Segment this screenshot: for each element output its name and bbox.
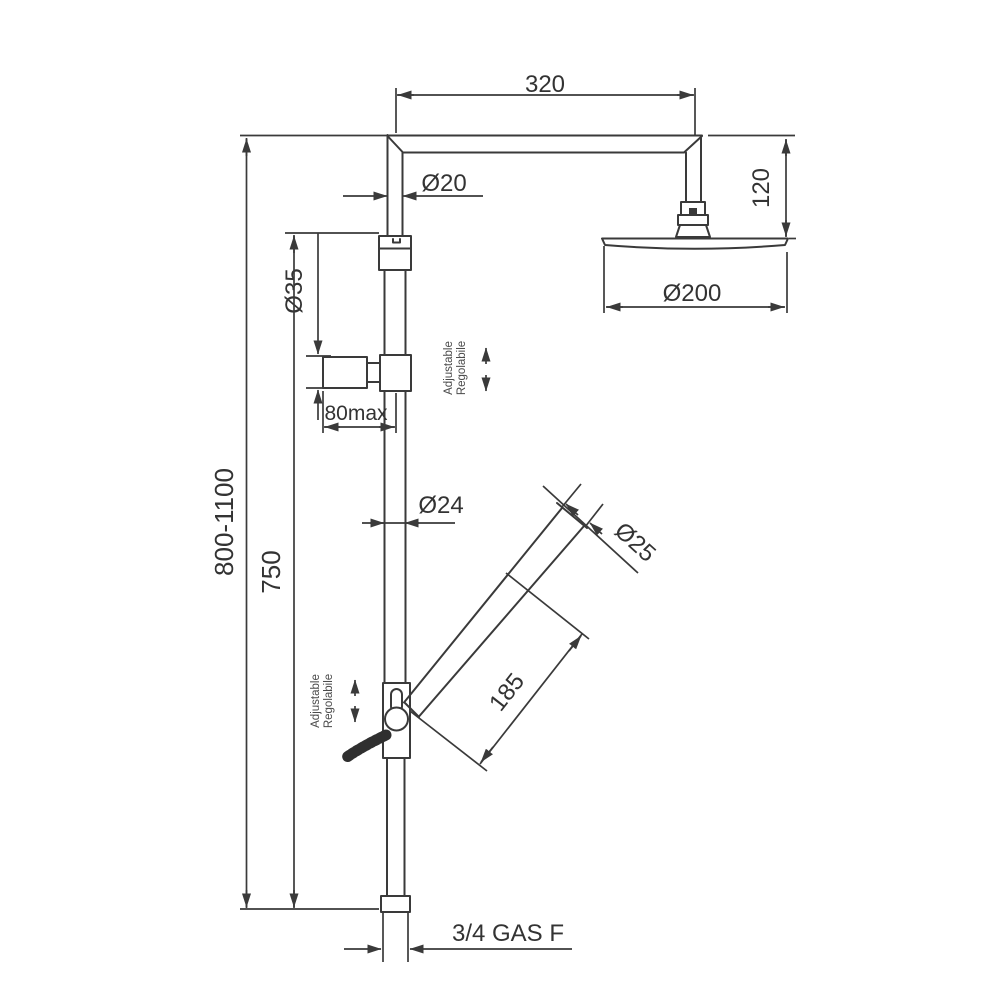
lower-adjustable-en-label: Adjustable	[310, 674, 322, 728]
dim-overall-height-800-1100: 800-1100	[209, 136, 387, 910]
dim-column-diameter-label: Ø24	[418, 492, 463, 519]
dim-arm-length-label: 320	[525, 71, 565, 98]
hand-shower-holder	[383, 683, 410, 758]
shower-hose	[347, 735, 386, 757]
drawing-canvas: 320 Ø20 120 Ø200 Ø35 80max Ad	[0, 0, 1000, 1000]
wall-bracket	[323, 355, 411, 391]
dim-head-diameter-200: Ø200	[604, 246, 787, 313]
dim-wall-clearance-label: 80max	[324, 402, 388, 425]
dim-head-drop-label: 120	[748, 168, 775, 208]
dim-handset-length-185: 185	[410, 573, 589, 771]
dim-arm-length-320: 320	[396, 71, 695, 135]
upper-collar	[379, 236, 411, 270]
dim-inlet-connection-gas: 3/4 GAS F	[344, 913, 572, 962]
dim-inlet-connection-label: 3/4 GAS F	[452, 920, 564, 947]
dim-arm-diameter-label: Ø20	[421, 170, 466, 197]
dim-handset-diameter-label: Ø25	[609, 517, 661, 567]
upper-adjustable-note: Adjustable Regolabile	[443, 341, 486, 395]
rain-shower-head	[602, 239, 788, 249]
dim-handset-diameter-25: Ø25	[543, 484, 661, 573]
upper-adjustable-en-label: Adjustable	[443, 341, 455, 395]
dim-arm-diameter-20: Ø20	[343, 170, 483, 197]
shower-column-technical-drawing: 320 Ø20 120 Ø200 Ø35 80max Ad	[0, 0, 1000, 1000]
lower-adjustable-note: Adjustable Regolabile	[310, 674, 355, 728]
upper-adjustable-it-label: Regolabile	[456, 341, 468, 395]
dim-head-diameter-label: Ø200	[663, 280, 722, 307]
dim-column-diameter-24: Ø24	[362, 492, 464, 523]
dim-lower-column-label: 750	[256, 550, 286, 593]
dim-overall-height-label: 800-1100	[209, 468, 239, 576]
ball-joint	[676, 202, 710, 237]
lower-adjustable-it-label: Regolabile	[323, 674, 335, 728]
bottom-connector	[381, 896, 410, 912]
dim-head-drop-120: 120	[708, 136, 796, 239]
